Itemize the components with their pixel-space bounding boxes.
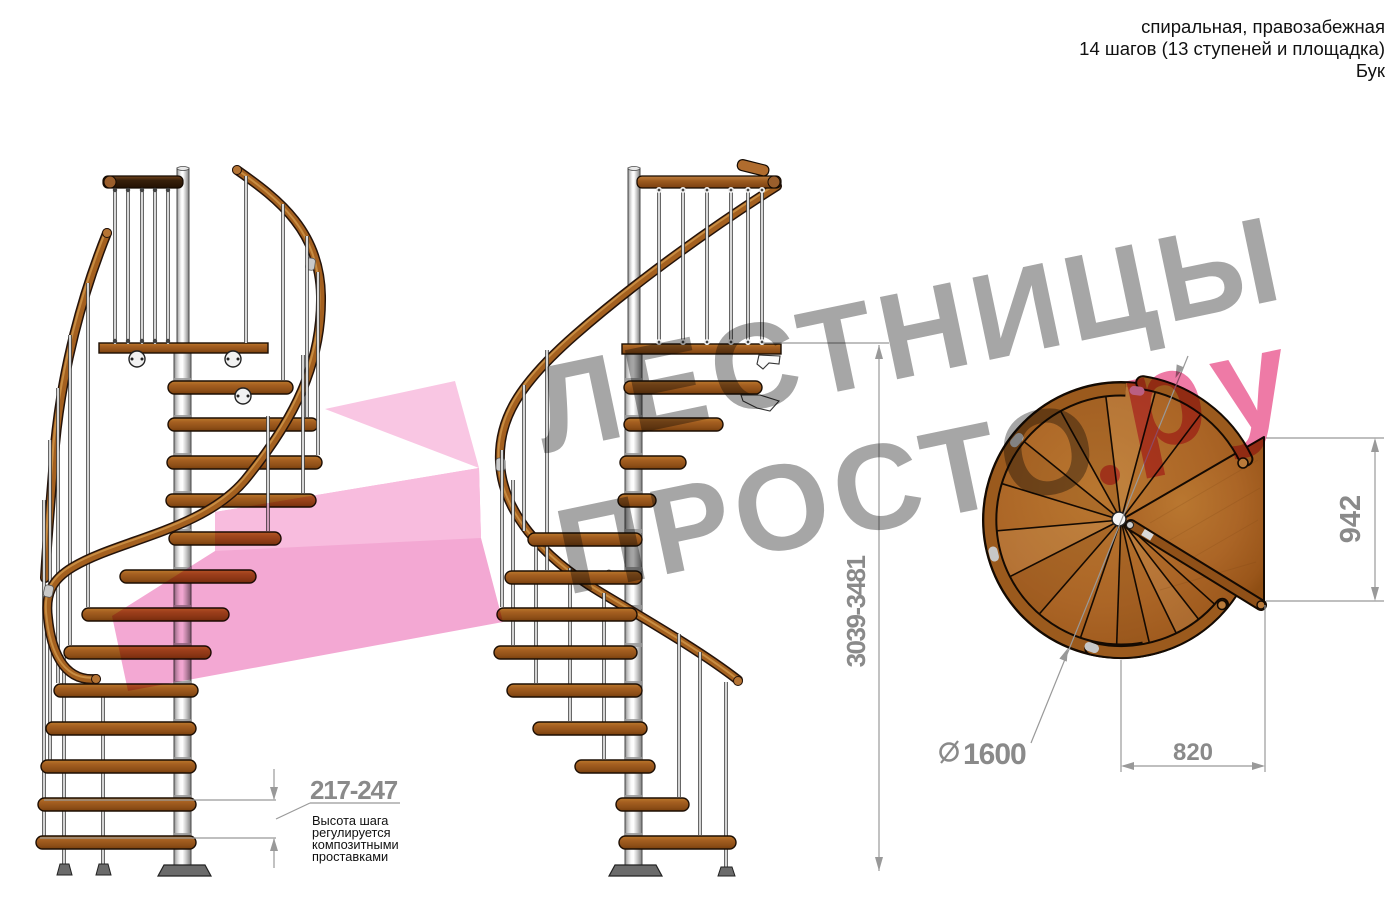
- svg-text:спиральная, правозабежная: спиральная, правозабежная: [1141, 16, 1385, 37]
- svg-text:942: 942: [1335, 495, 1367, 543]
- svg-text:Бук: Бук: [1356, 60, 1386, 81]
- svg-text:проставками: проставками: [312, 849, 388, 864]
- svg-text:14 шагов (13 ступеней и площад: 14 шагов (13 ступеней и площадка): [1079, 38, 1385, 59]
- svg-text:3039-3481: 3039-3481: [841, 556, 871, 668]
- svg-text:1600: 1600: [963, 738, 1026, 771]
- svg-text:820: 820: [1173, 739, 1213, 766]
- svg-text:217-247: 217-247: [310, 775, 398, 805]
